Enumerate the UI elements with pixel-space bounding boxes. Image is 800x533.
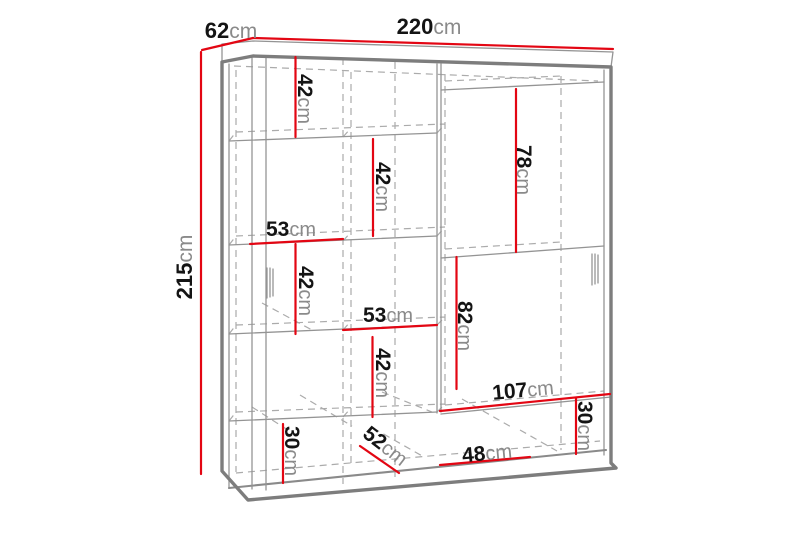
left-section-shelves xyxy=(229,133,437,421)
hidden-construction-lines xyxy=(229,58,604,484)
dim-label-shelf-h-2: 42cm xyxy=(371,162,394,212)
wardrobe-dimension-diagram: 62cm 220cm 215cm 42cm 42cm 53cm 42cm 53c… xyxy=(0,0,800,533)
door-handle-left-icon xyxy=(267,268,273,298)
dim-label-height: 215cm xyxy=(172,235,197,300)
dim-label-shelf-h-3: 42cm xyxy=(294,266,317,316)
dim-label-depth: 62cm xyxy=(205,18,257,43)
sliding-door-left-stiles xyxy=(252,57,266,490)
side-inner-edges xyxy=(229,64,604,487)
dimension-lines xyxy=(201,38,613,483)
hidden-back-edges xyxy=(234,58,604,484)
dim-label-bottom-h-right: 30cm xyxy=(573,401,596,451)
top-panel-edges xyxy=(222,41,613,67)
wardrobe-structure xyxy=(222,41,613,490)
dim-label-bottom-w-mid: 48cm xyxy=(461,440,513,468)
dim-label-right-top-h: 78cm xyxy=(512,145,535,195)
door-handle-right-icon xyxy=(592,254,598,285)
dim-label-shelf-w-2: 53cm xyxy=(363,304,413,327)
center-partition xyxy=(437,64,441,413)
dim-label-shelf-h-4: 42cm xyxy=(371,348,394,398)
dim-line-width xyxy=(253,38,613,49)
dim-label-shelf-w-1: 53cm xyxy=(266,218,316,241)
dim-label-right-mid-h: 82cm xyxy=(453,301,476,351)
dim-label-width: 220cm xyxy=(397,14,462,39)
diagram-canvas: 62cm 220cm 215cm 42cm 42cm 53cm 42cm 53c… xyxy=(0,0,800,533)
dim-label-shelf-h-1: 42cm xyxy=(293,74,316,124)
dim-label-bottom-h-left: 30cm xyxy=(280,426,303,476)
right-section-shelves xyxy=(441,82,611,414)
